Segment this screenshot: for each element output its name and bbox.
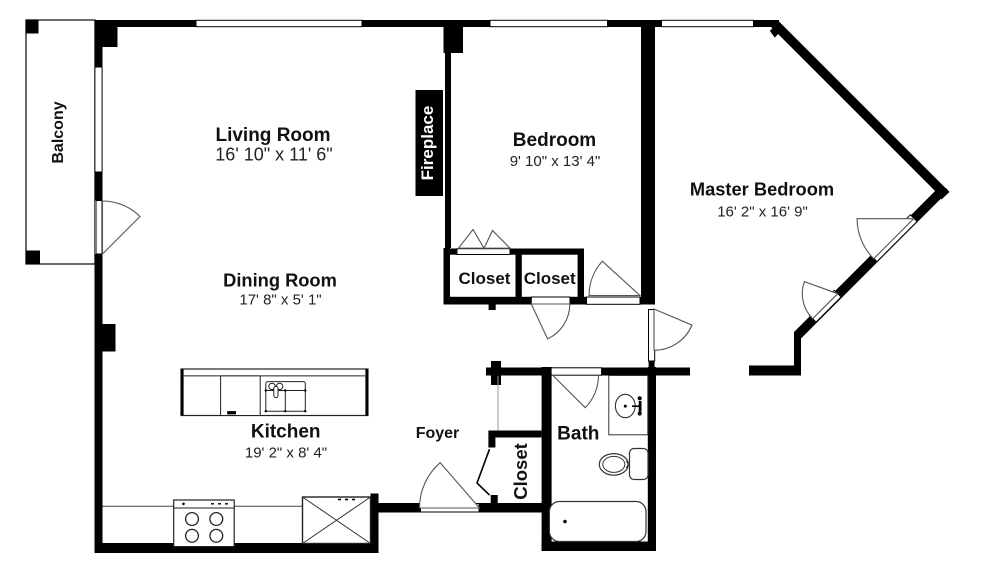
svg-text:Bedroom: Bedroom (513, 130, 596, 151)
svg-text:Kitchen: Kitchen (251, 422, 321, 443)
svg-text:9' 10" x 13' 4": 9' 10" x 13' 4" (510, 153, 601, 170)
svg-text:Closet: Closet (524, 269, 576, 288)
svg-text:Closet: Closet (510, 443, 531, 500)
svg-text:Dining Room: Dining Room (223, 270, 337, 291)
svg-text:Balcony: Balcony (50, 101, 67, 163)
svg-text:Master Bedroom: Master Bedroom (690, 179, 834, 200)
svg-text:16' 10" x 11' 6": 16' 10" x 11' 6" (215, 145, 332, 165)
svg-text:Closet: Closet (459, 269, 511, 288)
svg-text:19' 2" x 8' 4": 19' 2" x 8' 4" (245, 445, 327, 462)
svg-text:Living Room: Living Room (215, 125, 330, 146)
svg-text:Fireplace: Fireplace (418, 106, 437, 181)
svg-text:16' 2" x 16' 9": 16' 2" x 16' 9" (717, 204, 808, 221)
svg-text:Foyer: Foyer (416, 425, 460, 442)
svg-text:Bath: Bath (557, 424, 599, 445)
svg-text:17' 8" x 5' 1": 17' 8" x 5' 1" (239, 292, 321, 309)
